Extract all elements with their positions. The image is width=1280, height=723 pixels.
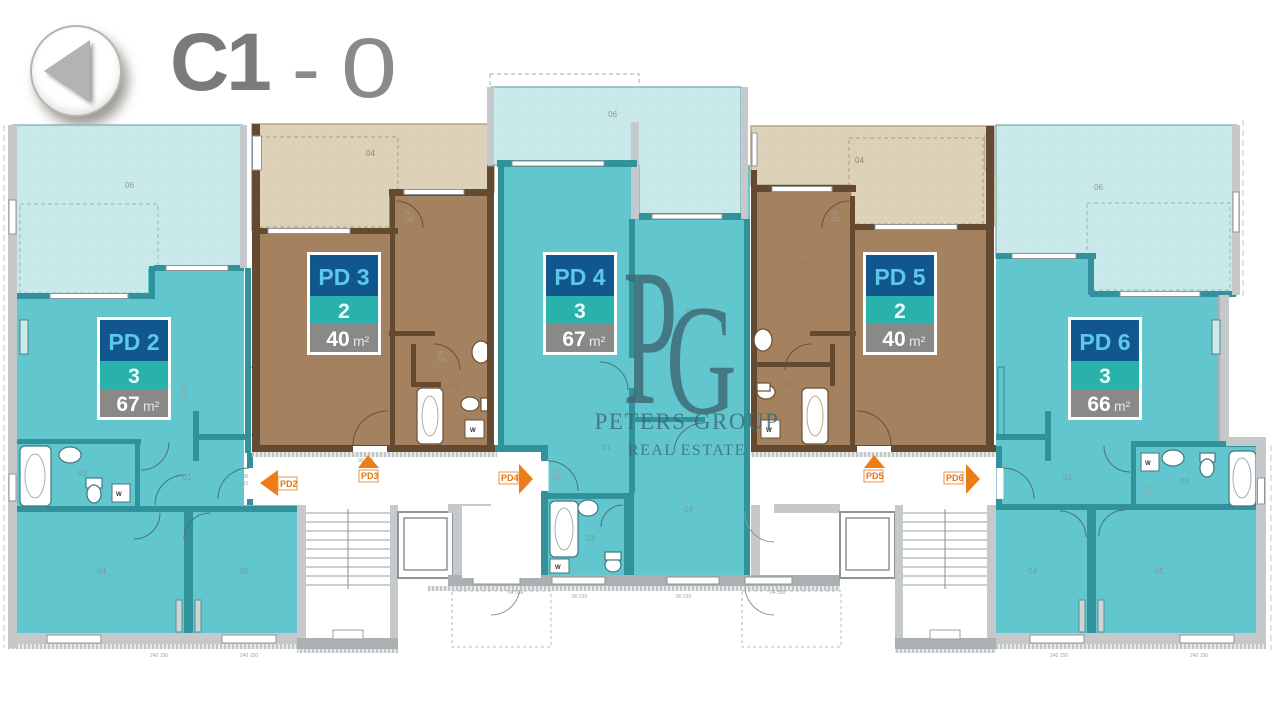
svg-text:03: 03 xyxy=(78,469,87,478)
svg-text:67: 67 xyxy=(562,328,585,351)
svg-text:210: 210 xyxy=(405,217,414,223)
svg-text:06: 06 xyxy=(1094,183,1103,192)
svg-text:W: W xyxy=(116,492,122,498)
svg-text:3: 3 xyxy=(574,300,586,323)
svg-text:67: 67 xyxy=(116,393,139,416)
svg-text:210: 210 xyxy=(437,357,446,363)
svg-text:04: 04 xyxy=(1028,567,1037,576)
svg-text:210: 210 xyxy=(1146,491,1155,497)
svg-text:06: 06 xyxy=(125,181,134,190)
svg-text:300 210: 300 210 xyxy=(182,384,188,402)
svg-text:PD 5: PD 5 xyxy=(874,264,925,290)
svg-text:210: 210 xyxy=(240,481,249,487)
svg-text:PD4: PD4 xyxy=(501,473,519,483)
svg-text:m²: m² xyxy=(353,333,370,349)
svg-text:240 150: 240 150 xyxy=(150,653,168,659)
svg-text:05: 05 xyxy=(240,567,249,576)
svg-text:W: W xyxy=(555,565,561,571)
svg-text:240 150: 240 150 xyxy=(1190,653,1208,659)
svg-text:PD 6: PD 6 xyxy=(1079,329,1130,355)
svg-text:01: 01 xyxy=(1063,473,1072,482)
svg-text:04 536: 04 536 xyxy=(770,590,786,596)
svg-text:01: 01 xyxy=(183,473,192,482)
svg-text:m²: m² xyxy=(143,398,160,414)
svg-text:04: 04 xyxy=(97,567,106,576)
svg-text:REAL ESTATE: REAL ESTATE xyxy=(628,442,746,459)
svg-text:PD 4: PD 4 xyxy=(554,264,605,290)
svg-text:W: W xyxy=(1145,461,1151,467)
svg-text:66: 66 xyxy=(1087,393,1110,416)
svg-text:100: 100 xyxy=(554,469,563,475)
svg-text:40: 40 xyxy=(882,328,905,351)
svg-text:m²: m² xyxy=(1114,398,1131,414)
svg-text:210: 210 xyxy=(832,217,841,223)
svg-text:m²: m² xyxy=(589,333,606,349)
svg-text:90 210: 90 210 xyxy=(572,594,588,600)
svg-text:05: 05 xyxy=(1155,567,1164,576)
svg-text:PD2: PD2 xyxy=(280,479,298,489)
svg-text:PD 3: PD 3 xyxy=(318,264,369,290)
svg-text:PD5: PD5 xyxy=(866,471,884,481)
svg-text:04: 04 xyxy=(855,156,864,165)
svg-text:2: 2 xyxy=(338,300,350,323)
svg-text:02: 02 xyxy=(451,381,460,390)
svg-text:PETERS GROUP: PETERS GROUP xyxy=(595,409,780,434)
svg-text:01: 01 xyxy=(602,443,611,452)
svg-text:04: 04 xyxy=(684,505,693,514)
svg-text:100: 100 xyxy=(240,474,249,480)
svg-text:240 150: 240 150 xyxy=(240,653,258,659)
svg-text:PD3: PD3 xyxy=(361,471,379,481)
svg-text:240 150: 240 150 xyxy=(1050,653,1068,659)
svg-text:2: 2 xyxy=(894,300,906,323)
svg-text:210: 210 xyxy=(554,476,563,482)
svg-text:04 536: 04 536 xyxy=(508,590,524,596)
svg-text:02: 02 xyxy=(786,381,795,390)
svg-text:W: W xyxy=(470,428,476,434)
svg-text:90 210: 90 210 xyxy=(676,594,692,600)
svg-text:3: 3 xyxy=(1099,365,1111,388)
svg-text:06: 06 xyxy=(608,110,617,119)
svg-text:07: 07 xyxy=(797,259,806,268)
svg-text:PD6: PD6 xyxy=(946,473,964,483)
svg-text:m²: m² xyxy=(909,333,926,349)
svg-text:03: 03 xyxy=(1180,477,1189,486)
svg-text:04: 04 xyxy=(366,149,375,158)
svg-text:40: 40 xyxy=(326,328,349,351)
svg-text:03: 03 xyxy=(586,534,595,543)
svg-text:3: 3 xyxy=(128,365,140,388)
svg-text:PD 2: PD 2 xyxy=(108,329,159,355)
